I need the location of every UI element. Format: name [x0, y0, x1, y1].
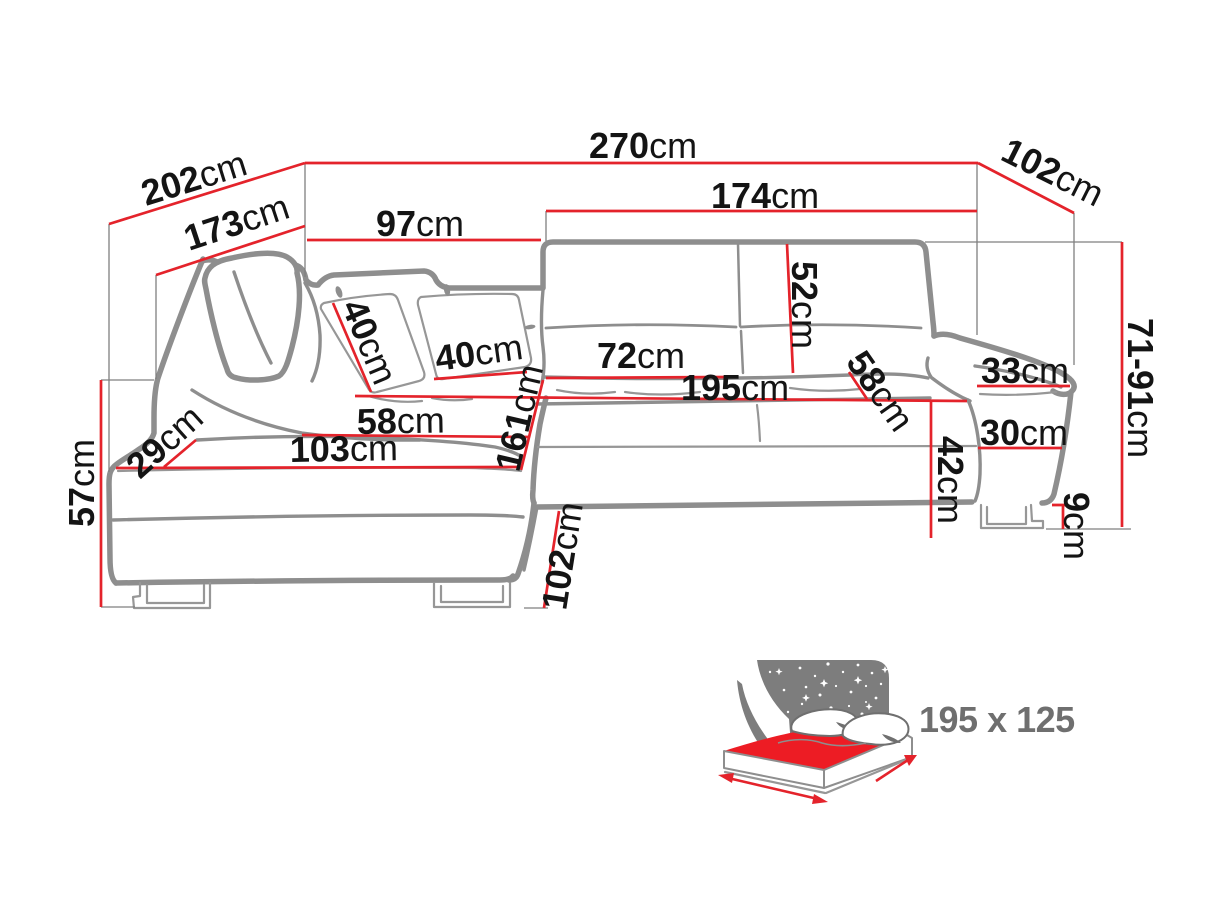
svg-text:52cm: 52cm	[784, 261, 825, 349]
svg-text:71-91cm: 71-91cm	[1120, 318, 1161, 458]
svg-text:57cm: 57cm	[61, 439, 102, 527]
svg-text:9cm: 9cm	[1056, 492, 1097, 560]
svg-text:97cm: 97cm	[376, 203, 464, 244]
svg-text:72cm: 72cm	[597, 335, 685, 376]
svg-text:270cm: 270cm	[589, 125, 697, 166]
svg-text:195 x 125: 195 x 125	[919, 699, 1075, 740]
svg-text:195cm: 195cm	[681, 367, 789, 408]
svg-text:33cm: 33cm	[981, 350, 1069, 391]
svg-text:42cm: 42cm	[930, 436, 971, 524]
svg-text:103cm: 103cm	[289, 427, 398, 470]
svg-text:174cm: 174cm	[711, 175, 819, 216]
svg-text:30cm: 30cm	[980, 412, 1068, 453]
